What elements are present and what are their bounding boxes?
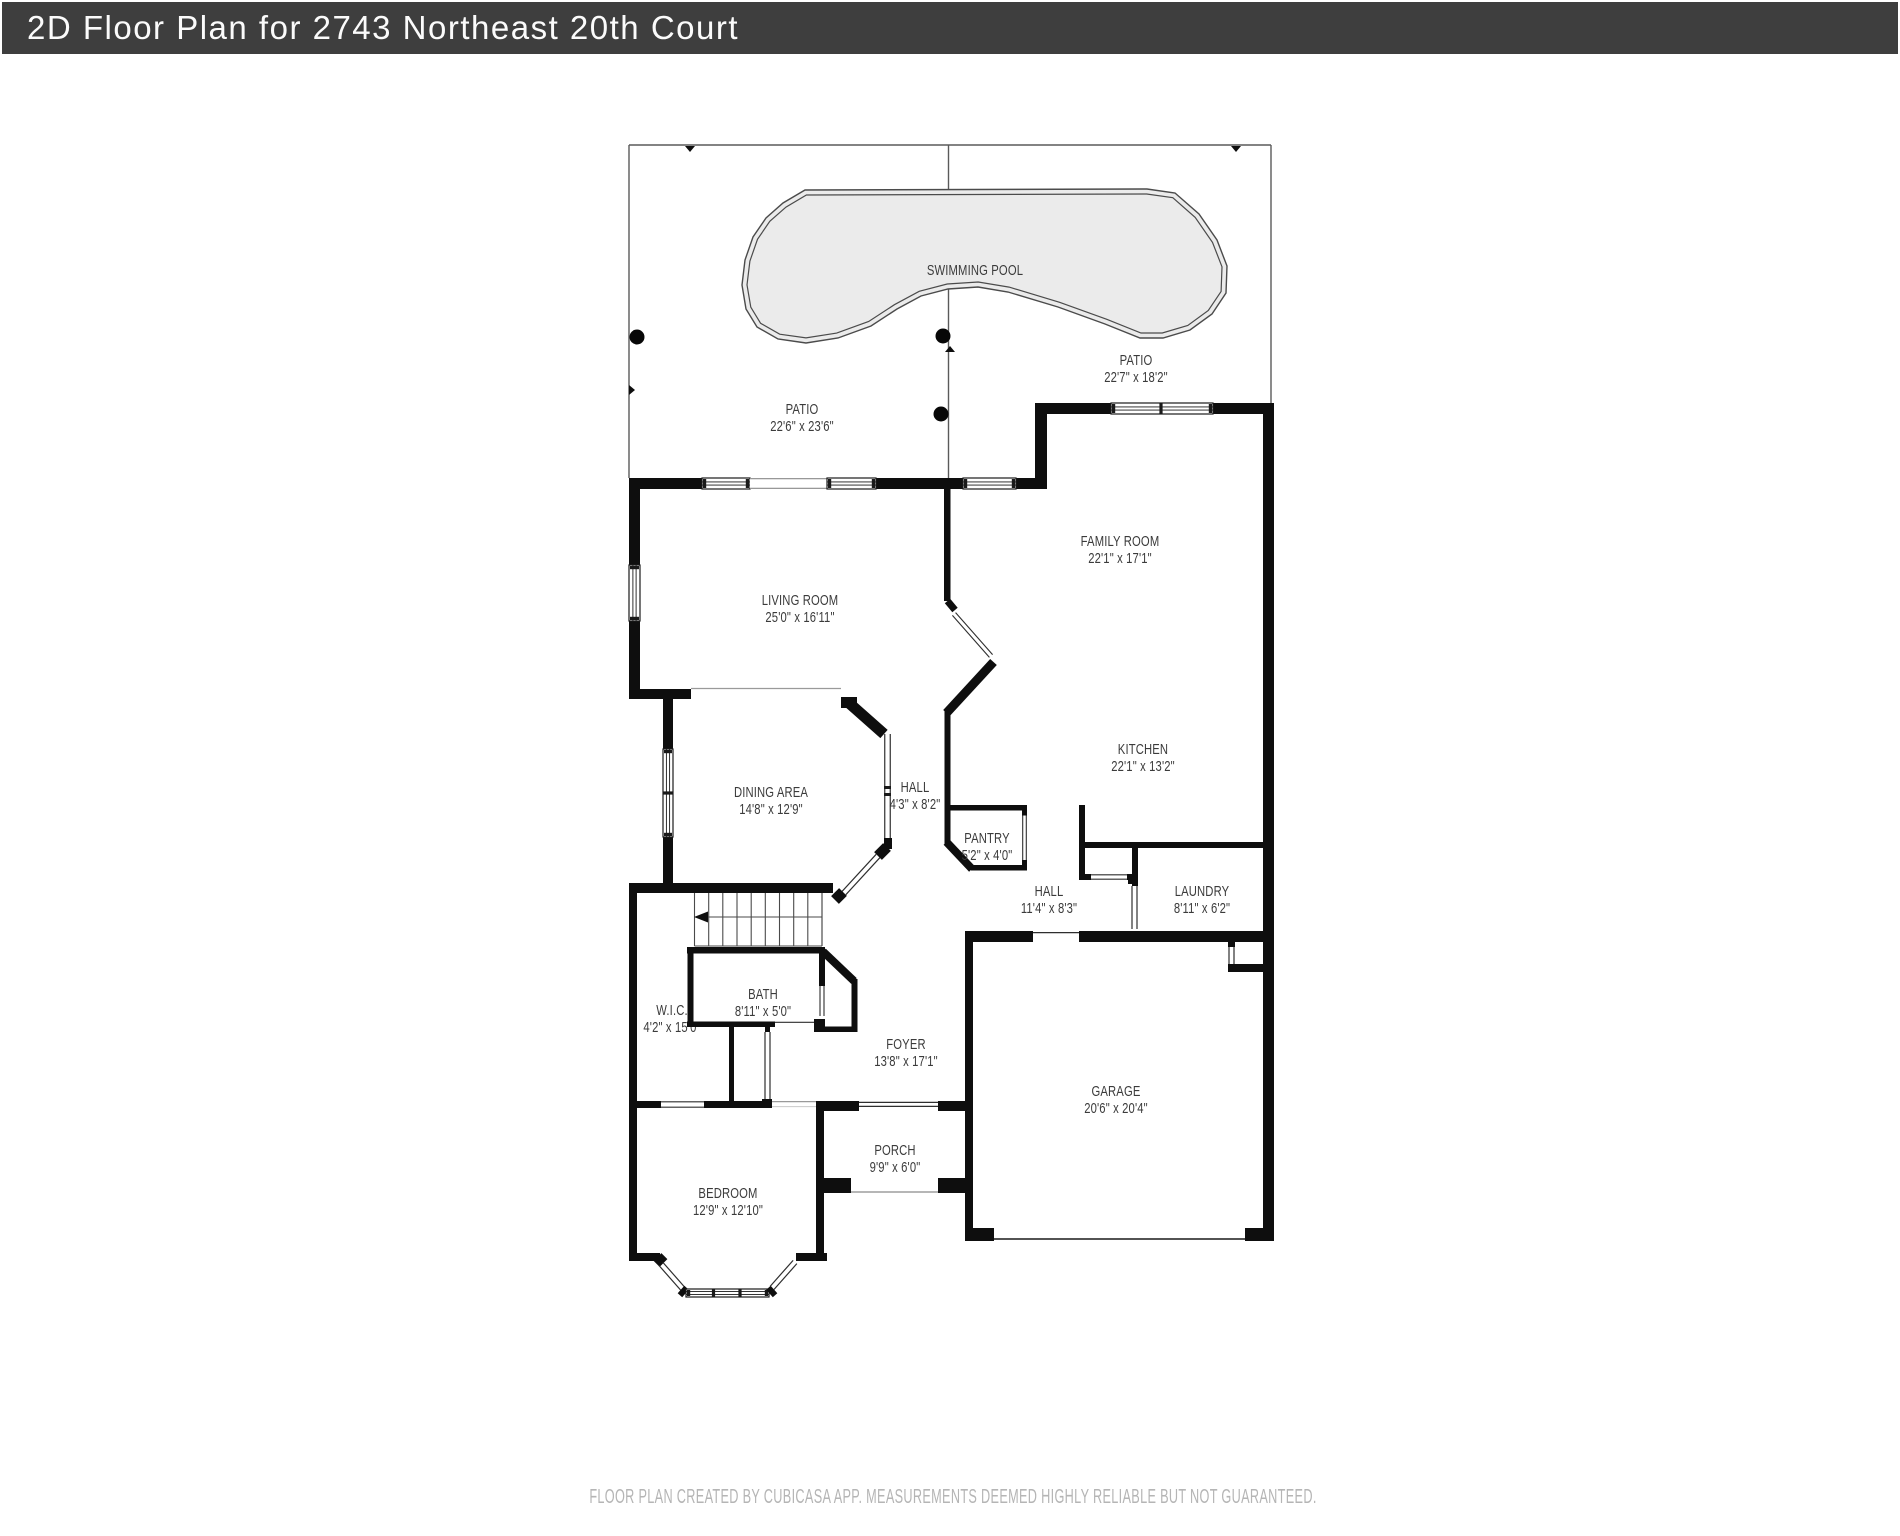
svg-text:FOYER: FOYER: [886, 1035, 925, 1052]
svg-text:22'7" x 18'2": 22'7" x 18'2": [1104, 368, 1168, 385]
svg-text:12'9" x 12'10": 12'9" x 12'10": [693, 1201, 763, 1218]
svg-text:PORCH: PORCH: [874, 1141, 915, 1158]
svg-text:20'6" x 20'4": 20'6" x 20'4": [1084, 1099, 1148, 1116]
svg-text:HALL: HALL: [1035, 882, 1064, 899]
svg-text:BEDROOM: BEDROOM: [698, 1184, 757, 1201]
svg-text:8'11" x 6'2": 8'11" x 6'2": [1174, 899, 1230, 916]
svg-text:8'11" x 5'0": 8'11" x 5'0": [735, 1002, 791, 1019]
svg-text:22'6" x 23'6": 22'6" x 23'6": [770, 417, 834, 434]
svg-text:KITCHEN: KITCHEN: [1118, 740, 1168, 757]
svg-text:GARAGE: GARAGE: [1091, 1082, 1140, 1099]
svg-text:FAMILY ROOM: FAMILY ROOM: [1081, 532, 1160, 549]
svg-text:11'4" x 8'3": 11'4" x 8'3": [1021, 899, 1077, 916]
svg-text:W.I.C.: W.I.C.: [656, 1001, 688, 1018]
svg-text:LIVING ROOM: LIVING ROOM: [762, 591, 839, 608]
svg-text:25'0" x 16'11": 25'0" x 16'11": [765, 608, 834, 625]
svg-text:9'9" x 6'0": 9'9" x 6'0": [870, 1158, 921, 1175]
svg-text:DINING AREA: DINING AREA: [734, 783, 808, 800]
svg-text:PATIO: PATIO: [786, 400, 819, 417]
svg-text:4'3" x 8'2": 4'3" x 8'2": [890, 795, 941, 812]
svg-text:HALL: HALL: [901, 778, 930, 795]
svg-text:22'1" x 13'2": 22'1" x 13'2": [1111, 757, 1175, 774]
svg-text:13'8" x 17'1": 13'8" x 17'1": [874, 1052, 938, 1069]
svg-text:14'8" x 12'9": 14'8" x 12'9": [739, 800, 803, 817]
svg-text:5'2" x 4'0": 5'2" x 4'0": [962, 846, 1013, 863]
svg-text:BATH: BATH: [748, 985, 778, 1002]
svg-text:PATIO: PATIO: [1120, 351, 1153, 368]
svg-text:LAUNDRY: LAUNDRY: [1175, 882, 1230, 899]
svg-text:22'1" x 17'1": 22'1" x 17'1": [1088, 549, 1152, 566]
svg-text:PANTRY: PANTRY: [964, 829, 1009, 846]
svg-text:SWIMMING POOL: SWIMMING POOL: [927, 261, 1023, 278]
